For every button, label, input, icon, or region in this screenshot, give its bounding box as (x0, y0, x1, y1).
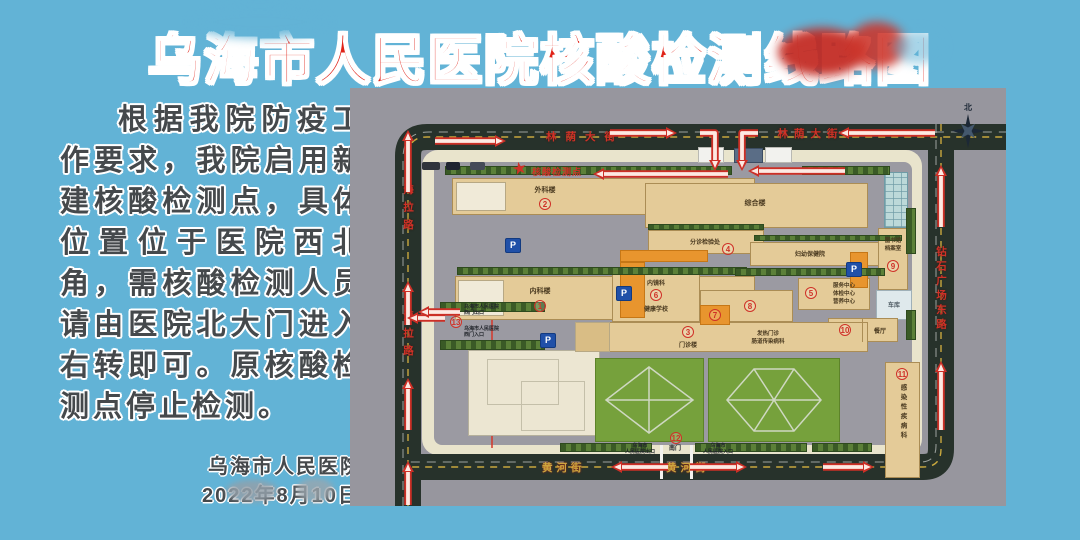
north-gate-canopy (698, 147, 724, 163)
street-north: 林荫大街 (515, 129, 655, 144)
building-9-number: 9 (887, 260, 899, 272)
route-arrow (402, 461, 414, 505)
parking-sign: P (846, 262, 862, 277)
building-5-number: 5 (805, 287, 817, 299)
title-blue-smudge (893, 30, 943, 64)
hedge-strip (812, 443, 872, 452)
canteen-label: 餐厅 (864, 326, 896, 335)
corridor-horizontal (620, 250, 708, 262)
compass-rose: 北 (950, 102, 986, 154)
hospital-route-map: 林荫大街 林荫大街 海拉路 海拉路 钻石广场东路 黄河街 黄河街 北 ★ 核酸检… (350, 88, 1006, 506)
car-icon (446, 162, 460, 170)
south-gate-label: 南门 (669, 446, 681, 453)
route-arrow (402, 378, 414, 430)
building-4-number: 4 (722, 243, 734, 255)
building-7-number: 7 (709, 309, 721, 321)
hedge-strip (735, 268, 885, 276)
route-arrow (402, 130, 414, 192)
building-surgery-wing (456, 182, 506, 211)
signature-org: 乌海市人民医院 (208, 450, 362, 479)
building-endoscopy-top-label: 内镜科 (630, 278, 682, 287)
building-10-number: 10 (839, 324, 851, 336)
notice-line: 位置位于医院西北 (60, 223, 362, 264)
parking-sign: P (505, 238, 521, 253)
compass-north-label: 北 (950, 102, 986, 113)
building-9-line: 档案室 (879, 244, 907, 252)
building-footprint (468, 350, 600, 436)
building-8-number: 8 (744, 300, 756, 312)
building-5-line: 营养中心 (822, 297, 866, 305)
notice-line: 根据我院防疫工 (60, 100, 362, 141)
route-arrow (435, 135, 506, 147)
building-2-number: 2 (539, 198, 551, 210)
notice-line: 测点停止检测。 (60, 387, 362, 428)
building-internal-label: 内科楼 (505, 286, 575, 296)
building-outpatient (575, 322, 868, 352)
building-infectious-label: 感染性疾病科 (897, 384, 907, 472)
building-11-number: 11 (896, 368, 908, 380)
lawn-east (708, 358, 840, 442)
building-surgery-label: 外科楼 (510, 185, 580, 195)
street-north: 林荫大街 (758, 126, 863, 141)
street-south: 黄河街 (542, 460, 586, 475)
notice-line: 右转即可。原核酸检 (60, 346, 362, 387)
building-6-number: 6 (650, 289, 662, 301)
building-maternal-label: 妇幼保健院 (770, 249, 850, 258)
south-gate-entry-label: 乌海市人民医院入口 (698, 444, 738, 456)
canteen-divider (862, 318, 863, 342)
car-icon (422, 162, 440, 170)
route-arrow (823, 461, 874, 473)
building-outpatient-label: 门诊楼 (663, 340, 713, 349)
hedge-strip (440, 340, 545, 350)
hedge-strip (445, 166, 732, 175)
street-west: 海拉路 (401, 184, 416, 237)
route-arrow (935, 165, 947, 227)
fever-clinic-line: 肠道传染病科 (740, 337, 796, 345)
north-gate-booth (734, 148, 763, 163)
west-gate-exit-label: 乌海市人民医院西门出口 (464, 305, 499, 317)
building-outpatient-wing (575, 322, 610, 352)
notice-line: 角，需核酸检测人员 (60, 264, 362, 305)
building-3-number: 3 (682, 326, 694, 338)
test-point-star-icon: ★ (510, 159, 528, 179)
south-gate-post (690, 445, 693, 479)
building-triage-label: 分诊检验处 (660, 237, 750, 246)
south-gate-number: 12 (670, 432, 682, 444)
parking-sign: P (540, 333, 556, 348)
notice-line: 请由医院北大门进入 (60, 305, 362, 346)
building-endoscopy-bottom-label: 健康学校 (630, 304, 682, 313)
north-gate-canopy (765, 147, 792, 163)
street-south: 黄河街 (666, 460, 710, 475)
garage-label: 车库 (878, 300, 910, 309)
route-arrow (935, 361, 947, 430)
parking-sign: P (616, 286, 632, 301)
car-icon (470, 162, 485, 170)
building-complex-label: 综合楼 (720, 198, 790, 208)
hedge-strip (802, 166, 890, 175)
south-gate-exit-label: 乌海市人民医院出口 (620, 444, 660, 456)
poster-canvas: 乌海市人民医院核酸检测线路图 根据我院防疫工 作要求，我院启用新 建核酸检测点，… (0, 0, 1080, 540)
hedge-strip (457, 267, 747, 275)
notice-line: 作要求，我院启用新 (60, 141, 362, 182)
street-east: 钻石广场东路 (934, 246, 949, 333)
hedge-strip (648, 224, 764, 230)
date-smudge (296, 478, 334, 502)
title-blue-smudge (190, 6, 330, 38)
hedge-strip (906, 208, 916, 254)
building-9-line: 图书馆 (879, 236, 907, 244)
hedge-strip (906, 310, 916, 340)
street-west: 海拉路 (401, 310, 416, 363)
building-5-line: 服务中心 (822, 281, 866, 289)
building-5-line: 体检中心 (822, 289, 866, 297)
notice-text: 根据我院防疫工 作要求，我院启用新 建核酸检测点，具体 位置位于医院西北 角，需… (60, 100, 362, 428)
building-glass (884, 172, 908, 228)
date-smudge (226, 480, 278, 502)
west-gate-entry-label: 乌海市人民医院西门入口 (464, 327, 499, 339)
compass-icon (950, 113, 986, 149)
test-point-label: 核酸检测点 (532, 165, 582, 178)
building-1-number: 1 (534, 300, 546, 312)
south-gate-post (660, 445, 663, 479)
west-gate-number: 13 (450, 316, 462, 328)
notice-line: 建核酸检测点，具体 (60, 182, 362, 223)
lawn-west (595, 358, 704, 442)
fever-clinic-line: 发热门诊 (740, 329, 796, 337)
signature-date: 2022年8月10日 (202, 479, 360, 508)
